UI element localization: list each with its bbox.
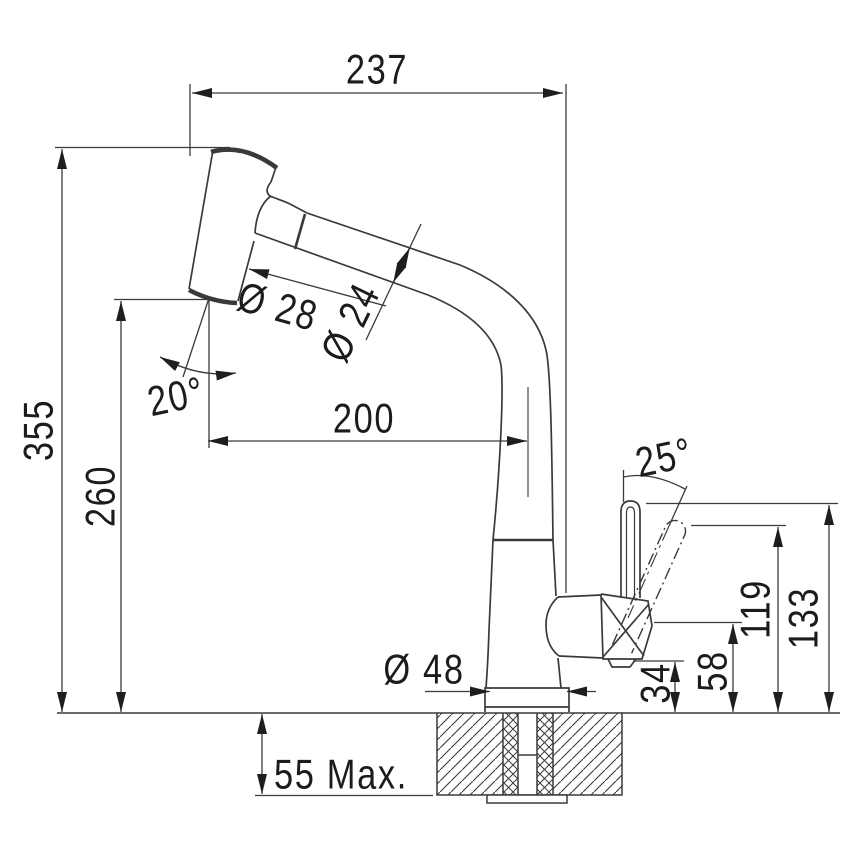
dim-24-arrow-down	[393, 269, 399, 282]
spout-tube-lower-edge	[255, 233, 502, 540]
spray-head-left-edge	[189, 150, 213, 289]
tube-joint-line	[295, 214, 305, 249]
label-lever-max-height: 133	[781, 587, 828, 649]
base-flange	[485, 688, 569, 712]
dimension-labels: 237 355 260 200 20° Ø 28 Ø 24 25° 119 13…	[16, 47, 828, 799]
head-notch	[267, 182, 290, 204]
deck-hatch-left	[437, 713, 503, 795]
faucet-drawing-svg: 237 355 260 200 20° Ø 28 Ø 24 25° 119 13…	[0, 0, 860, 860]
label-deck-max-thickness: 55 Max.	[274, 752, 408, 799]
trunk-left-edge	[486, 540, 493, 688]
valve-housing-bulge	[546, 597, 559, 656]
valve-housing-top	[558, 595, 601, 597]
technical-drawing: 237 355 260 200 20° Ø 28 Ø 24 25° 119 13…	[0, 0, 860, 860]
mounting-nut	[487, 795, 567, 803]
valve-housing-bottom	[559, 656, 603, 658]
head-cone	[255, 196, 271, 233]
label-lever-height: 119	[733, 579, 780, 639]
spout-tube-upper-edge	[290, 204, 553, 540]
label-valve-center-height: 58	[690, 650, 737, 692]
label-overall-width: 237	[346, 47, 408, 94]
shank-thread-right	[537, 713, 553, 795]
angle-25-leg-tilted	[669, 486, 687, 526]
label-spray-head-diameter: Ø 28	[232, 273, 323, 341]
lever-outer	[621, 501, 640, 598]
deck-section	[57, 713, 840, 803]
shank-thread-left	[503, 713, 518, 795]
label-spout-reach: 200	[333, 396, 395, 443]
trunk-right-edge-lower	[558, 658, 561, 688]
angle-20-leg-tilted	[183, 298, 209, 377]
label-lever-swing-angle: 25°	[631, 429, 697, 487]
dim-24-arrow-up	[404, 248, 410, 260]
label-valve-bottom-height: 34	[633, 662, 680, 704]
deck-hatch-right	[553, 713, 622, 795]
faucet-outline	[189, 150, 652, 712]
spray-head-right-edge-upper	[271, 167, 276, 182]
label-overall-height: 355	[16, 399, 63, 461]
label-spray-head-angle: 20°	[143, 368, 209, 426]
spray-head-bottom-cap	[189, 290, 237, 303]
label-spray-outlet-height: 260	[78, 465, 125, 527]
label-base-diameter: Ø 48	[383, 647, 464, 694]
lever-inner	[627, 507, 635, 598]
valve-body-facets	[601, 594, 652, 659]
trunk-right-edge-upper	[553, 540, 556, 596]
spray-head-top-cap	[211, 150, 277, 168]
